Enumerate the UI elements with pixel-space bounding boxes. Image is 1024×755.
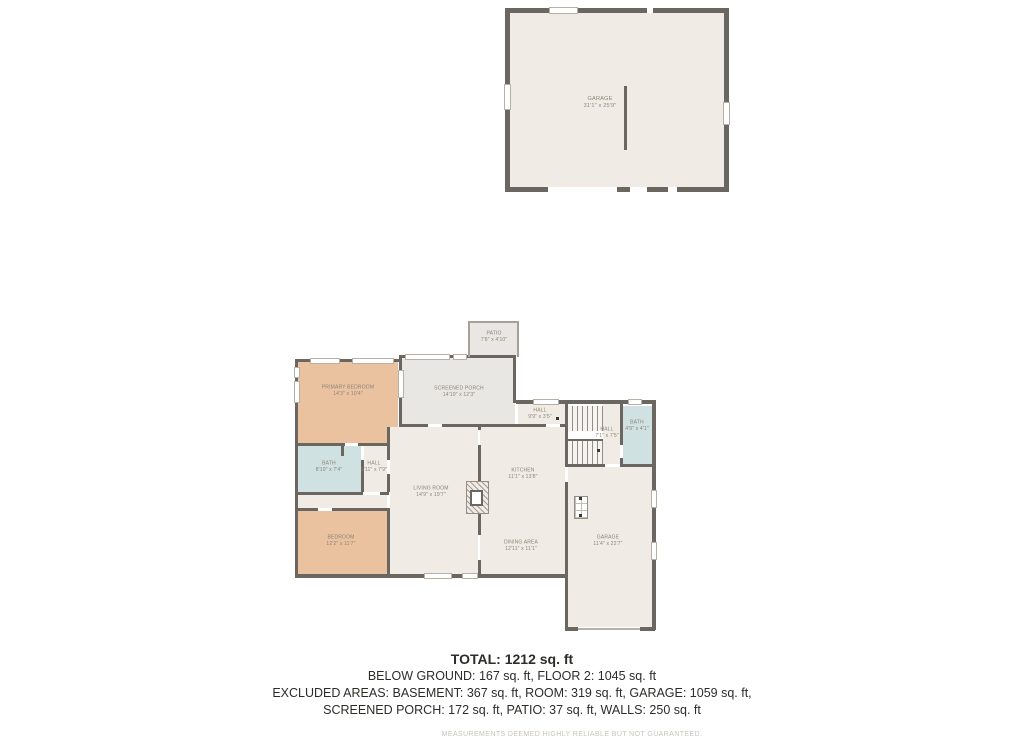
wall-segment bbox=[358, 443, 389, 446]
summary-line: EXCLUDED AREAS: BASEMENT: 367 sq. ft, RO… bbox=[0, 685, 1024, 702]
room-dims: 14'3" x 10'4" bbox=[316, 391, 381, 398]
room-dims: 12'11" x 11'1" bbox=[489, 546, 554, 553]
room-dims: 11'1" x 13'8" bbox=[491, 474, 556, 481]
room-bath-upper bbox=[623, 406, 652, 464]
room-label-living-room: LIVING ROOM 14'9" x 19'7" bbox=[399, 485, 464, 499]
wall-segment bbox=[565, 464, 605, 467]
room-dims: 7'8" x 4'10" bbox=[462, 337, 527, 344]
window-marker bbox=[398, 370, 404, 398]
window-marker bbox=[628, 399, 642, 405]
window-marker bbox=[504, 84, 511, 110]
wall-segment bbox=[565, 627, 578, 631]
wall-segment bbox=[620, 458, 623, 464]
window-marker bbox=[294, 381, 300, 403]
room-dims: 31'1" x 25'9" bbox=[564, 103, 636, 111]
window-marker bbox=[723, 102, 730, 125]
room-label-garage-attached: GARAGE 11'4" x 22'7" bbox=[576, 534, 641, 548]
summary-line: BELOW GROUND: 167 sq. ft, FLOOR 2: 1045 … bbox=[0, 668, 1024, 685]
room-name: HALL bbox=[357, 460, 390, 467]
room-name: HALL bbox=[590, 426, 623, 433]
room-label-screened-porch: SCREENED PORCH 14'10" x 12'3" bbox=[427, 385, 492, 399]
room-name: HALL bbox=[508, 407, 573, 414]
wall-segment bbox=[399, 424, 428, 427]
fireplace-firebox bbox=[470, 490, 483, 506]
room-dims: 9'9" x 3'5" bbox=[508, 414, 573, 421]
door-opening bbox=[668, 187, 677, 192]
room-name: KITCHEN bbox=[491, 467, 556, 474]
window-marker bbox=[651, 490, 657, 508]
area-summary: TOTAL: 1212 sq. ft BELOW GROUND: 167 sq.… bbox=[0, 651, 1024, 719]
room-label-dining-area: DINING AREA 12'11" x 11'1" bbox=[489, 539, 554, 553]
wall-segment bbox=[380, 492, 389, 495]
window-marker bbox=[533, 399, 559, 405]
door-opening bbox=[630, 187, 647, 192]
garage-door-line bbox=[578, 628, 640, 630]
door-opening bbox=[548, 187, 617, 192]
wall-segment bbox=[295, 443, 345, 446]
wall-segment bbox=[387, 474, 390, 492]
wall-segment bbox=[341, 443, 344, 456]
window-marker bbox=[453, 354, 467, 360]
wall-segment bbox=[513, 355, 516, 403]
room-name: SCREENED PORCH bbox=[427, 385, 492, 392]
room-label-kitchen: KITCHEN 11'1" x 13'8" bbox=[491, 467, 556, 481]
window-marker bbox=[424, 573, 452, 579]
room-name: LIVING ROOM bbox=[399, 485, 464, 492]
room-dims: 12'2" x 11'7" bbox=[309, 541, 374, 548]
wall-segment bbox=[478, 560, 481, 574]
door-swing-dot bbox=[597, 449, 600, 452]
room-dims: 8'10" x 7'4" bbox=[297, 467, 362, 474]
window-marker bbox=[294, 367, 300, 378]
wall-segment bbox=[468, 321, 519, 323]
room-label-bath-left: BATH 8'10" x 7'4" bbox=[297, 460, 362, 474]
disclaimer-text: MEASUREMENTS DEEMED HIGHLY RELIABLE BUT … bbox=[60, 731, 1024, 738]
wall-segment bbox=[724, 8, 729, 192]
wall-segment bbox=[387, 508, 390, 574]
room-name: BATH bbox=[620, 419, 653, 426]
wall-segment bbox=[295, 492, 363, 495]
room-name: GARAGE bbox=[564, 95, 636, 103]
wall-segment bbox=[442, 424, 546, 427]
room-label-hall-left: HALL 2'11" x 7'9" bbox=[357, 460, 390, 474]
room-name: PATIO bbox=[462, 330, 527, 337]
room-corridor bbox=[298, 495, 387, 508]
window-marker bbox=[310, 358, 340, 364]
wall-segment bbox=[620, 464, 652, 467]
room-name: PRIMARY BEDROOM bbox=[316, 384, 381, 391]
room-label-hall-stairs: HALL 7'1" x 7'5" bbox=[590, 426, 623, 440]
wall-segment bbox=[652, 400, 656, 630]
room-name: GARAGE bbox=[576, 534, 641, 541]
window-marker bbox=[405, 354, 450, 360]
wall-segment bbox=[478, 445, 481, 481]
room-name: DINING AREA bbox=[489, 539, 554, 546]
room-dims: 14'10" x 12'3" bbox=[427, 392, 492, 399]
room-living-room bbox=[390, 427, 478, 574]
room-label-bedroom: BEDROOM 12'2" x 11'7" bbox=[309, 534, 374, 548]
wall-segment bbox=[478, 424, 481, 430]
wall-segment bbox=[295, 508, 318, 511]
floorplan-canvas: GARAGE 31'1" x 25'9" bbox=[0, 0, 1024, 755]
room-dims: 4'9" x 4'1" bbox=[620, 426, 653, 433]
window-marker bbox=[549, 7, 578, 14]
summary-line: SCREENED PORCH: 172 sq. ft, PATIO: 37 sq… bbox=[0, 702, 1024, 719]
wall-segment bbox=[387, 427, 390, 460]
window-marker bbox=[462, 573, 478, 579]
wall-segment bbox=[565, 482, 568, 627]
window-marker bbox=[352, 358, 394, 364]
room-name: BATH bbox=[297, 460, 362, 467]
fixture-dot bbox=[579, 514, 582, 517]
room-label-garage-floor2: GARAGE 31'1" x 25'9" bbox=[564, 95, 636, 110]
wall-segment bbox=[505, 8, 729, 13]
door-opening bbox=[647, 8, 653, 13]
wall-segment bbox=[332, 508, 389, 511]
room-dims: 7'1" x 7'5" bbox=[590, 433, 623, 440]
wall-segment bbox=[505, 187, 729, 192]
fixture-dot bbox=[579, 497, 582, 500]
room-label-bath-upper: BATH 4'9" x 4'1" bbox=[620, 419, 653, 433]
room-dims: 11'4" x 22'7" bbox=[576, 541, 641, 548]
window-marker bbox=[651, 542, 657, 560]
room-dims: 14'9" x 19'7" bbox=[399, 492, 464, 499]
total-area: TOTAL: 1212 sq. ft bbox=[0, 651, 1024, 668]
room-primary-bedroom bbox=[297, 362, 398, 443]
room-label-primary-bedroom: PRIMARY BEDROOM 14'3" x 10'4" bbox=[316, 384, 381, 398]
room-name: BEDROOM bbox=[309, 534, 374, 541]
room-label-patio: PATIO 7'8" x 4'10" bbox=[462, 330, 527, 344]
room-dims: 2'11" x 7'9" bbox=[357, 467, 390, 474]
wall-segment bbox=[478, 513, 481, 535]
room-label-hall-upper: HALL 9'9" x 3'5" bbox=[508, 407, 573, 421]
